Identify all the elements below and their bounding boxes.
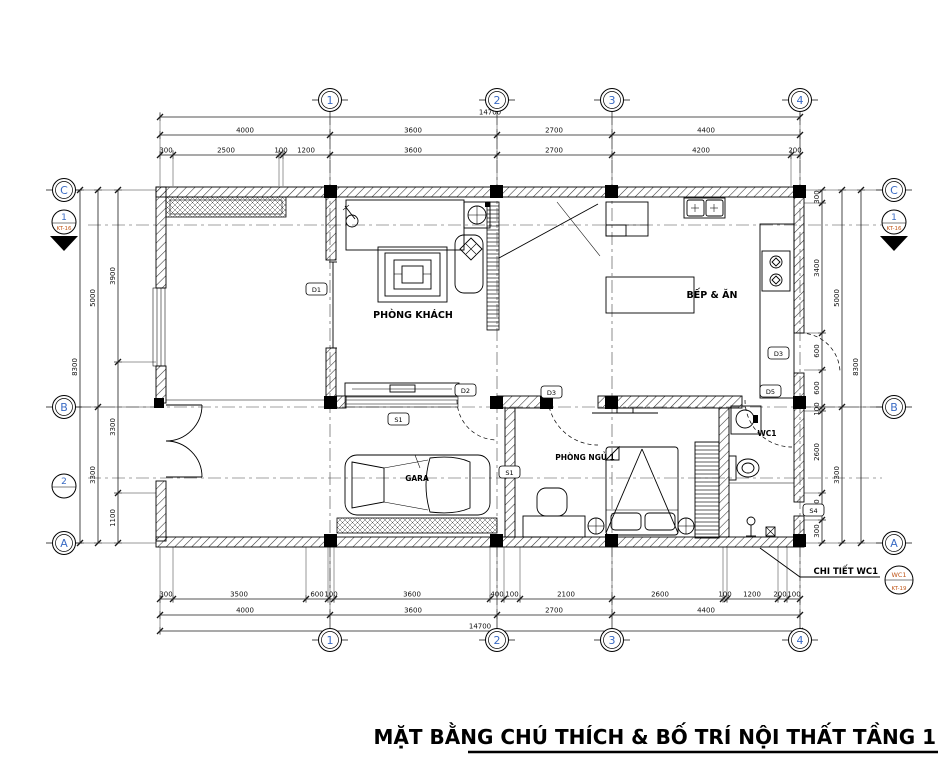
x: 2 (52, 474, 76, 498)
dim-label: 3300 (833, 466, 841, 484)
grid-bubble-4-top-label: 4 (797, 94, 804, 107)
dim-label: 2600 (651, 591, 669, 599)
tag-s4: S4 (803, 504, 824, 516)
svg-text:S1: S1 (394, 416, 402, 424)
dim-label: 2100 (557, 591, 575, 599)
dim-label: 3400 (813, 259, 821, 277)
section-marker-1-right: 1KT-16 (880, 210, 908, 251)
dim-label: 4000 (236, 607, 254, 615)
tag-d3-side: D3 (768, 347, 789, 359)
title-text: MẶT BẰNG CHÚ THÍCH & BỐ TRÍ NỘI THẤT TẦN… (374, 723, 936, 749)
dim-label: 8300 (852, 358, 860, 376)
stair-rail (487, 202, 499, 330)
grid-bubble-c-left: C (46, 179, 82, 202)
grid-bubble-b-left: B (46, 396, 82, 419)
living-room-label: PHÒNG KHÁCH (373, 309, 453, 321)
svg-text:D3: D3 (547, 389, 556, 397)
dim-label: 3300 (109, 418, 117, 436)
tag-d2: D2 (455, 384, 476, 396)
direction-arrow (343, 205, 358, 227)
toilet (729, 456, 759, 480)
drawing-title: MẶT BẰNG CHÚ THÍCH & BỐ TRÍ NỘI THẤT TẦN… (374, 723, 938, 752)
grid-bubble-4-bottom: 4 (782, 629, 818, 652)
floor-plan-page: 1470040003600270044003002500100120036002… (0, 0, 942, 763)
dim-label: 4400 (697, 127, 715, 135)
tag-s1-garage: S1 (499, 466, 520, 478)
svg-text:D1: D1 (312, 286, 321, 294)
stove (762, 251, 790, 291)
living-room-furniture (343, 200, 490, 396)
dim-label: 1200 (743, 591, 761, 599)
kitchen-label: BẾP & ĂN (687, 288, 738, 301)
entry-double-door (166, 405, 202, 477)
dim-label: 1100 (109, 509, 117, 527)
dim-label: 100 (274, 147, 287, 155)
grid-bubble-3-top-label: 3 (609, 94, 616, 107)
grid-bubble-1-top: 1 (312, 89, 348, 112)
dim-label: 3900 (109, 267, 117, 285)
garage-label: GARA (405, 474, 429, 483)
dim-label: 3600 (403, 591, 421, 599)
grid-bubble-a-right: A (876, 532, 912, 555)
grid-bubble-3-bottom: 3 (594, 629, 630, 652)
callout-code: WC1 (891, 571, 906, 579)
dim-label: 14700 (469, 623, 491, 631)
section-marker-1-left: 1KT-16 (50, 210, 78, 251)
coffee-table (378, 247, 447, 302)
svg-text:S1: S1 (505, 469, 513, 477)
dim-label: 200 (773, 591, 786, 599)
tag-d3-bedroom: D3 (541, 386, 562, 398)
wc-label: WC1 (758, 429, 777, 438)
dim-label: 600 (310, 591, 323, 599)
grid-bubble-b-right: B (876, 396, 912, 419)
dim-label: 4400 (697, 607, 715, 615)
grid-bubble-2-top-label: 2 (494, 94, 501, 107)
grid-bubble-4-bottom-label: 4 (797, 634, 804, 647)
car (345, 455, 490, 515)
doors (166, 262, 840, 477)
grid-bubble-c-left-label: C (60, 184, 68, 197)
stair-break-line (499, 204, 598, 258)
dim-label: 300 (813, 524, 821, 537)
floor-plan-drawing: 1470040003600270044003002500100120036002… (0, 0, 942, 763)
grid-bubble-a-right-label: A (890, 537, 898, 550)
grid-bubbles: 12341234CBACBA (46, 89, 912, 652)
dim-label: 1200 (297, 147, 315, 155)
bedroom-tv (592, 408, 658, 413)
nightstand-lamp-left (588, 518, 604, 534)
dim-label: 3600 (404, 127, 422, 135)
shower (746, 517, 756, 536)
washbasin (731, 406, 761, 434)
tag-s1-living: S1 (388, 413, 409, 425)
tag-d5: D5 (760, 385, 781, 397)
grid-bubble-1-top-label: 1 (327, 94, 334, 107)
dim-label: 4000 (236, 127, 254, 135)
wc-detail-callout: CHI TIẾT WC1 WC1 KT-19 (760, 548, 913, 594)
dim-label: 3500 (230, 591, 248, 599)
dim-label: 2700 (545, 607, 563, 615)
svg-text:S4: S4 (809, 507, 817, 515)
dim-label: 400 (490, 591, 503, 599)
kitchen-counter (760, 224, 794, 398)
sink (684, 198, 725, 218)
wardrobe (695, 442, 719, 538)
section-marker-1-right-sheet: KT-16 (886, 226, 902, 232)
grid-bubble-b-left-label: B (60, 401, 68, 414)
grid-bubble-4-top: 4 (782, 89, 818, 112)
dim-label: 2700 (545, 147, 563, 155)
dim-label: 2700 (545, 127, 563, 135)
dim-label: 2600 (813, 443, 821, 461)
dim-label: 4200 (692, 147, 710, 155)
grid-bubble-b-right-label: B (890, 401, 898, 414)
section-marker-1-left-number: 1 (61, 213, 67, 223)
dim-label: 100 (324, 591, 337, 599)
svg-text:D5: D5 (766, 388, 775, 396)
dim-label: 300 (159, 591, 172, 599)
grid-bubble-a-left-label: A (60, 537, 68, 550)
armchair (455, 235, 483, 293)
fan-symbol (464, 202, 490, 228)
dim-label: 3600 (404, 147, 422, 155)
grid-bubble-c-right-label: C (890, 184, 898, 197)
desk-chair (537, 488, 567, 516)
grid-bubble-3-bottom-label: 3 (609, 634, 616, 647)
callout-sheet: KT-19 (891, 586, 907, 592)
floor-drain (766, 527, 775, 536)
grid-bubble-a-left: A (46, 532, 82, 555)
x-number: 2 (61, 477, 67, 487)
dim-label: 3600 (404, 607, 422, 615)
dim-label: 5000 (833, 289, 841, 307)
stairs (487, 202, 600, 330)
callout-label: CHI TIẾT WC1 (813, 564, 878, 577)
dim-label: 300 (159, 147, 172, 155)
grid-bubble-1-bottom: 1 (312, 629, 348, 652)
grid-bubble-2-bottom: 2 (479, 629, 515, 652)
dim-label: 300 (813, 190, 821, 203)
bedroom-furniture (523, 408, 719, 538)
dim-label: 100 (813, 402, 821, 415)
decor-diamond (460, 238, 482, 260)
window-s1-living (345, 397, 458, 407)
dim-label: 100 (718, 591, 731, 599)
tv-console-living (345, 383, 459, 396)
dim-label: 600 (813, 344, 821, 357)
svg-text:D2: D2 (461, 387, 470, 395)
dim-label: 100 (505, 591, 518, 599)
dim-label: 200 (788, 147, 801, 155)
dim-label: 5000 (89, 289, 97, 307)
tag-d1: D1 (306, 283, 327, 295)
dim-label: 600 (813, 381, 821, 394)
bedroom-label: PHÒNG NGỦ 1 (555, 452, 615, 462)
bed (606, 447, 678, 535)
grid-bubble-2-bottom-label: 2 (494, 634, 501, 647)
dining-table (606, 277, 694, 313)
wc-fixtures (729, 406, 794, 536)
grid-bubble-c-right: C (876, 179, 912, 202)
dim-label: 2500 (217, 147, 235, 155)
garage-furniture (345, 455, 490, 515)
garage-door-threshold (337, 518, 497, 533)
dim-label: 100 (787, 591, 800, 599)
grid-bubble-1-bottom-label: 1 (327, 634, 334, 647)
section-marker-1-left-sheet: KT-16 (56, 226, 72, 232)
section-marker-1-right-number: 1 (891, 213, 897, 223)
dim-label: 3300 (89, 466, 97, 484)
dim-label: 8300 (71, 358, 79, 376)
svg-text:D3: D3 (774, 350, 783, 358)
desk (523, 516, 585, 537)
window-left-wall (153, 288, 165, 366)
nightstand-lamp-right (678, 518, 694, 534)
grid-bubble-3-top: 3 (594, 89, 630, 112)
